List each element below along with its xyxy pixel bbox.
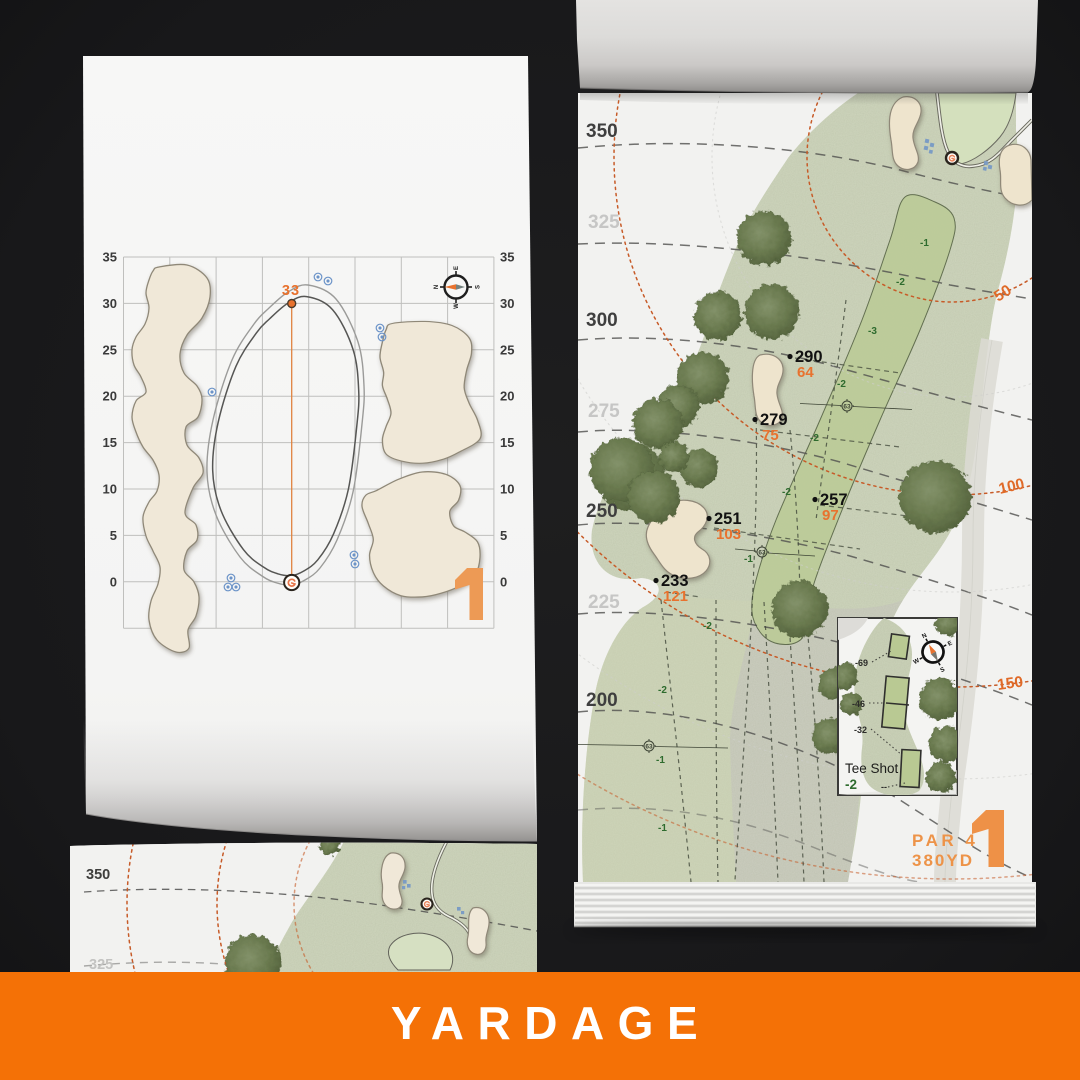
- svg-text:103: 103: [716, 526, 741, 543]
- svg-text:380YD: 380YD: [912, 851, 974, 870]
- svg-text:63: 63: [843, 404, 851, 411]
- svg-text:-2: -2: [845, 777, 857, 792]
- svg-text:YARDAGE: YARDAGE: [391, 997, 711, 1049]
- svg-text:300: 300: [586, 310, 618, 331]
- svg-text:75: 75: [762, 427, 779, 444]
- svg-text:PAR 4: PAR 4: [912, 831, 978, 850]
- svg-text:N: N: [434, 285, 440, 289]
- svg-text:E: E: [454, 266, 460, 270]
- svg-text:-1: -1: [744, 554, 753, 565]
- svg-text:0: 0: [500, 574, 507, 589]
- svg-text:-32: -32: [854, 725, 867, 735]
- svg-text:250: 250: [586, 501, 618, 522]
- svg-text:350: 350: [86, 867, 110, 883]
- svg-text:225: 225: [588, 592, 620, 613]
- svg-text:10: 10: [103, 482, 117, 497]
- svg-text:200: 200: [586, 690, 618, 711]
- svg-text:97: 97: [822, 507, 839, 524]
- svg-text:-2: -2: [658, 685, 667, 696]
- svg-text:-2: -2: [810, 433, 819, 444]
- svg-text:275: 275: [588, 401, 620, 422]
- svg-text:25: 25: [500, 342, 514, 357]
- svg-text:30: 30: [500, 296, 514, 311]
- svg-text:0: 0: [110, 574, 117, 589]
- svg-text:63: 63: [645, 744, 653, 751]
- svg-text:10: 10: [500, 482, 514, 497]
- svg-text:S: S: [476, 285, 482, 289]
- svg-text:30: 30: [103, 296, 117, 311]
- svg-text:15: 15: [103, 435, 117, 450]
- svg-text:Tee Shot: Tee Shot: [845, 761, 899, 776]
- svg-text:35: 35: [500, 250, 514, 265]
- svg-text:325: 325: [89, 957, 113, 973]
- svg-text:-2: -2: [782, 487, 791, 498]
- svg-text:25: 25: [103, 342, 117, 357]
- svg-text:-1: -1: [658, 823, 667, 834]
- svg-text:-69: -69: [855, 658, 868, 668]
- svg-text:-2: -2: [703, 621, 712, 632]
- svg-text:150: 150: [996, 674, 1024, 694]
- svg-text:121: 121: [663, 588, 688, 605]
- svg-text:63: 63: [758, 550, 766, 557]
- svg-text:33: 33: [282, 283, 300, 299]
- svg-text:-46: -46: [852, 699, 865, 709]
- svg-text:350: 350: [586, 121, 618, 142]
- svg-text:15: 15: [500, 435, 514, 450]
- svg-text:-2: -2: [837, 379, 846, 390]
- svg-text:-1: -1: [920, 238, 929, 249]
- svg-text:64: 64: [797, 364, 814, 381]
- svg-text:5: 5: [500, 528, 507, 543]
- svg-text:325: 325: [588, 212, 620, 233]
- svg-text:-2: -2: [896, 277, 905, 288]
- svg-text:W: W: [454, 303, 460, 309]
- svg-text:20: 20: [500, 389, 514, 404]
- svg-text:35: 35: [103, 250, 117, 265]
- svg-text:-3: -3: [868, 326, 877, 337]
- svg-text:5: 5: [110, 528, 117, 543]
- svg-text:20: 20: [103, 389, 117, 404]
- svg-text:--: --: [881, 782, 887, 792]
- svg-text:-1: -1: [656, 755, 665, 766]
